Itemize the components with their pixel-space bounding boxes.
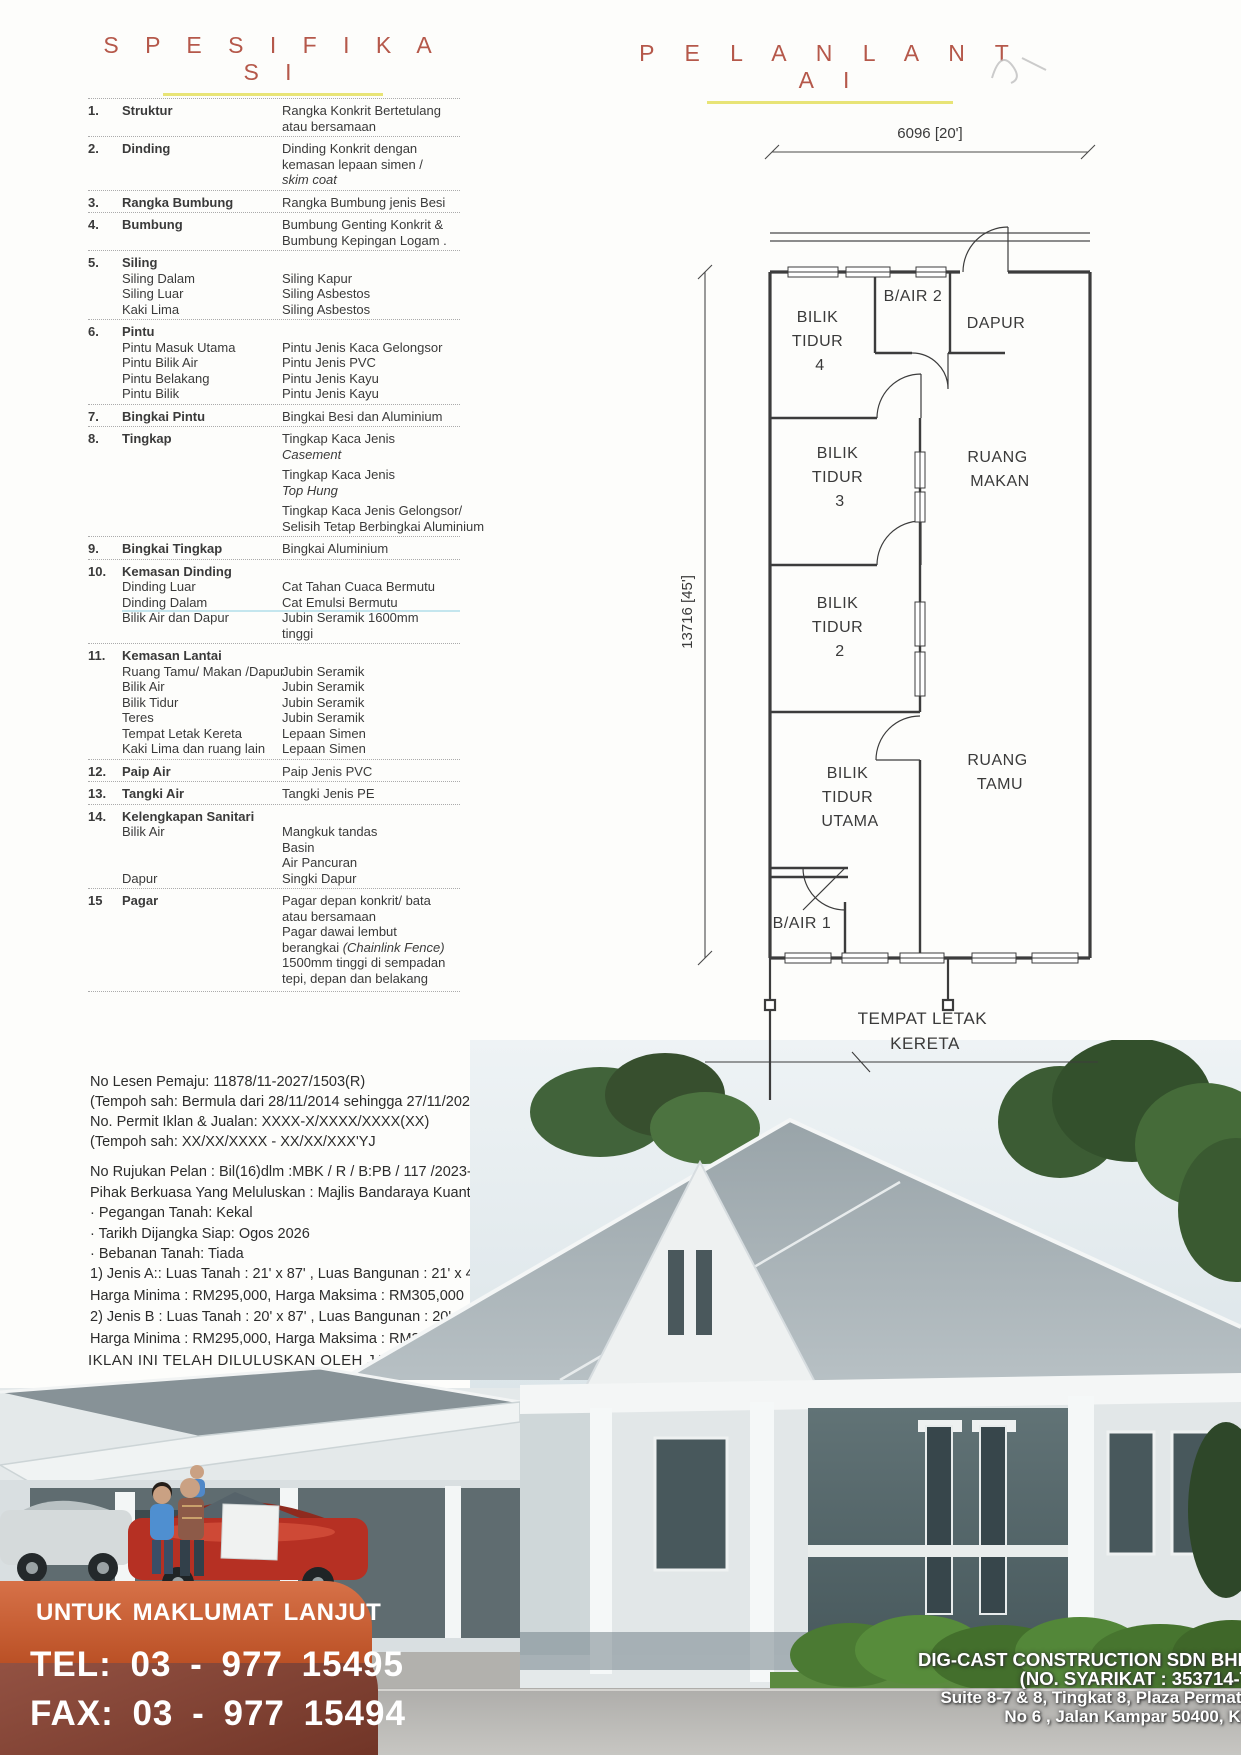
room-label-bair-2: B/AIR 2 <box>884 288 943 305</box>
spec-number: 6. <box>88 324 122 402</box>
spec-number: 7. <box>88 409 122 425</box>
spec-number: 8. <box>88 431 122 534</box>
spec-table: 1.StrukturRangka Konkrit Bertetulangatau… <box>88 98 460 992</box>
spec-row: 8.TingkapTingkap Kaca JenisCasementTingk… <box>88 426 460 536</box>
spec-label: Kelengkapan Sanitari <box>122 809 282 825</box>
spec-value: Siling Kapur <box>282 271 460 287</box>
developer-registration: (NO. SYARIKAT : 353714-T <box>918 1669 1241 1688</box>
spec-number: 2. <box>88 141 122 188</box>
spec-label: Bilik Air <box>122 824 282 871</box>
window-symbols <box>785 267 1078 963</box>
dim-width-label: 6096 [20'] <box>897 125 962 142</box>
spec-number: 9. <box>88 541 122 557</box>
spec-row: 13.Tangki AirTangki Jenis PE <box>88 781 460 804</box>
developer-name: DIG-CAST CONSTRUCTION SDN BHD <box>918 1650 1241 1669</box>
spec-label: Dinding Dalam <box>122 595 282 611</box>
spec-value <box>282 648 460 664</box>
spec-value <box>282 564 460 580</box>
room-label-dapur: DAPUR <box>967 315 1026 332</box>
developer-address-2: No 6 , Jalan Kampar 50400, KL <box>918 1707 1241 1726</box>
rail <box>808 1545 1080 1557</box>
spec-label: Pintu Belakang <box>122 371 282 387</box>
contact-fax: FAX: 03 - 977 15494 <box>30 1694 406 1734</box>
room-label-bilik-tidur-utama: BILIK TIDUR UTAMA <box>821 765 878 830</box>
spec-label: Paip Air <box>122 764 282 780</box>
spec-row: 14.Kelengkapan SanitariBilik AirMangkuk … <box>88 804 460 889</box>
room-label-bilik-tidur-3: BILIK TIDUR 3 <box>812 445 868 510</box>
spec-value: Jubin Seramik <box>282 664 460 680</box>
spec-label: Pintu <box>122 324 282 340</box>
spec-value: Lepaan Simen <box>282 726 460 742</box>
spec-label: Kaki Lima <box>122 302 282 318</box>
spec-label: Kemasan Dinding <box>122 564 282 580</box>
spec-label: Bingkai Pintu <box>122 409 282 425</box>
spec-number: 15 <box>88 893 122 986</box>
spec-number: 12. <box>88 764 122 780</box>
spec-number: 10. <box>88 564 122 642</box>
spec-value: Jubin Seramik <box>282 695 460 711</box>
spec-number: 11. <box>88 648 122 757</box>
spec-row: 6.PintuPintu Masuk UtamaPintu Jenis Kaca… <box>88 319 460 404</box>
plan-heading-text: P E L A N L A N T A I <box>639 40 1021 93</box>
signboard <box>221 1504 279 1560</box>
spec-label: Bingkai Tingkap <box>122 541 282 557</box>
spec-label: Bumbung <box>122 217 282 248</box>
room-label-bilik-tidur-2: BILIK TIDUR 2 <box>812 595 868 660</box>
spec-value <box>282 809 460 825</box>
spec-label: Dinding <box>122 141 282 188</box>
developer-info: DIG-CAST CONSTRUCTION SDN BHD (NO. SYARI… <box>918 1650 1241 1726</box>
spec-row: 4.BumbungBumbung Genting Konkrit &Bumbun… <box>88 212 460 250</box>
plan-heading-underline <box>707 101 953 104</box>
spec-label: Dapur <box>122 871 282 887</box>
spec-row: 11.Kemasan LantaiRuang Tamu/ Makan /Dapu… <box>88 643 460 759</box>
spec-label: Bilik Tidur <box>122 695 282 711</box>
spec-value: Jubin Seramik <box>282 679 460 695</box>
room-label-bilik-tidur-4: BILIK TIDUR 4 <box>792 309 848 374</box>
spec-value: Lepaan Simen <box>282 741 460 757</box>
spec-value <box>282 324 460 340</box>
spec-label: Siling Luar <box>122 286 282 302</box>
spec-heading-underline <box>163 93 383 96</box>
spec-value: Tangki Jenis PE <box>282 786 460 802</box>
slot-window <box>926 1426 952 1614</box>
brochure-page: 6096 [20'] 13716 [45'] BILIK TIDUR 4 B/A… <box>0 0 1241 1755</box>
spec-value: Cat Emulsi Bermutu <box>282 595 460 611</box>
spec-label: Pintu Masuk Utama <box>122 340 282 356</box>
spec-value: Mangkuk tandasBasinAir Pancuran <box>282 824 460 871</box>
spec-row: 3.Rangka BumbungRangka Bumbung jenis Bes… <box>88 190 460 213</box>
spec-label: Kaki Lima dan ruang lain <box>122 741 282 757</box>
spec-label: Kemasan Lantai <box>122 648 282 664</box>
spec-row: 15PagarPagar depan konkrit/ bataatau ber… <box>88 888 460 992</box>
outer-walls <box>770 272 1090 958</box>
spec-row: 7.Bingkai PintuBingkai Besi dan Aluminiu… <box>88 404 460 427</box>
spec-row: 1.StrukturRangka Konkrit Bertetulangatau… <box>88 98 460 136</box>
spec-number: 13. <box>88 786 122 802</box>
spec-value: Tingkap Kaca JenisCasementTingkap Kaca J… <box>282 431 484 534</box>
spec-value: Pintu Jenis PVC <box>282 355 460 371</box>
spec-label: Tangki Air <box>122 786 282 802</box>
spec-value: Bingkai Besi dan Aluminium <box>282 409 460 425</box>
spec-value: Pagar depan konkrit/ bataatau bersamaanP… <box>282 893 460 986</box>
spec-value: Jubin Seramik <box>282 710 460 726</box>
spec-label: Dinding Luar <box>122 579 282 595</box>
spec-value: Jubin Seramik 1600mmtinggi <box>282 610 460 641</box>
spec-label: Pagar <box>122 893 282 986</box>
spec-number: 1. <box>88 103 122 134</box>
spec-label: Pintu Bilik Air <box>122 355 282 371</box>
spec-label: Bilik Air dan Dapur <box>122 610 282 641</box>
spec-row: 10.Kemasan DindingDinding LuarCat Tahan … <box>88 559 460 644</box>
interior-walls <box>770 272 1005 958</box>
spec-value: Rangka Bumbung jenis Besi <box>282 195 460 211</box>
spec-heading-text: S P E S I F I K A S I <box>103 32 441 85</box>
spec-value: Singki Dapur <box>282 871 460 887</box>
spec-value: Siling Asbestos <box>282 286 460 302</box>
window <box>1108 1432 1154 1554</box>
spec-value: Pintu Jenis Kaca Gelongsor <box>282 340 460 356</box>
spec-value: Bingkai Aluminium <box>282 541 460 557</box>
spec-value: Dinding Konkrit dengankemasan lepaan sim… <box>282 141 460 188</box>
spec-label: Siling Dalam <box>122 271 282 287</box>
spec-value <box>282 255 460 271</box>
spec-label: Siling <box>122 255 282 271</box>
spec-row: 5.SilingSiling DalamSiling KapurSiling L… <box>88 250 460 319</box>
spec-value: Rangka Konkrit Bertetulangatau bersamaan <box>282 103 460 134</box>
spec-value: Pintu Jenis Kayu <box>282 371 460 387</box>
window <box>655 1438 727 1570</box>
spec-label: Ruang Tamu/ Makan /Dapur <box>122 664 282 680</box>
spec-label: Teres <box>122 710 282 726</box>
spec-label: Struktur <box>122 103 282 134</box>
spec-row: 2.DindingDinding Konkrit dengankemasan l… <box>88 136 460 190</box>
dimension-lines <box>698 145 1095 965</box>
room-label-ruang-makan: RUANG MAKAN <box>967 449 1032 490</box>
spec-value: Paip Jenis PVC <box>282 764 460 780</box>
slot-window <box>980 1426 1006 1614</box>
spec-row: 12.Paip AirPaip Jenis PVC <box>88 759 460 782</box>
spec-number: 4. <box>88 217 122 248</box>
plan-heading: P E L A N L A N T A I <box>630 40 1030 104</box>
room-label-ruang-tamu: RUANG TAMU <box>967 752 1032 793</box>
room-label-bair-1: B/AIR 1 <box>773 915 832 932</box>
spec-row: 9.Bingkai TingkapBingkai Aluminium <box>88 536 460 559</box>
spec-label: Tingkap <box>122 431 282 534</box>
spec-value: Siling Asbestos <box>282 302 460 318</box>
contact-tel: TEL: 03 - 977 15495 <box>30 1645 404 1685</box>
spec-heading: S P E S I F I K A S I <box>85 32 460 96</box>
spec-number: 14. <box>88 809 122 887</box>
spec-value: Cat Tahan Cuaca Bermutu <box>282 579 460 595</box>
spec-number: 3. <box>88 195 122 211</box>
contact-banner-title: UNTUK MAKLUMAT LANJUT <box>36 1599 381 1627</box>
spec-label: Tempat Letak Kereta <box>122 726 282 742</box>
spec-value: Bumbung Genting Konkrit &Bumbung Kepinga… <box>282 217 460 248</box>
dim-height-label: 13716 [45'] <box>679 575 696 649</box>
spec-label: Rangka Bumbung <box>122 195 282 211</box>
developer-address-1: Suite 8-7 & 8, Tingkat 8, Plaza Permata <box>918 1688 1241 1707</box>
spec-label: Bilik Air <box>122 679 282 695</box>
door-arcs <box>803 227 1008 910</box>
boundary-lines <box>770 233 1090 241</box>
spec-value: Pintu Jenis Kayu <box>282 386 460 402</box>
spec-label: Pintu Bilik <box>122 386 282 402</box>
spec-number: 5. <box>88 255 122 317</box>
